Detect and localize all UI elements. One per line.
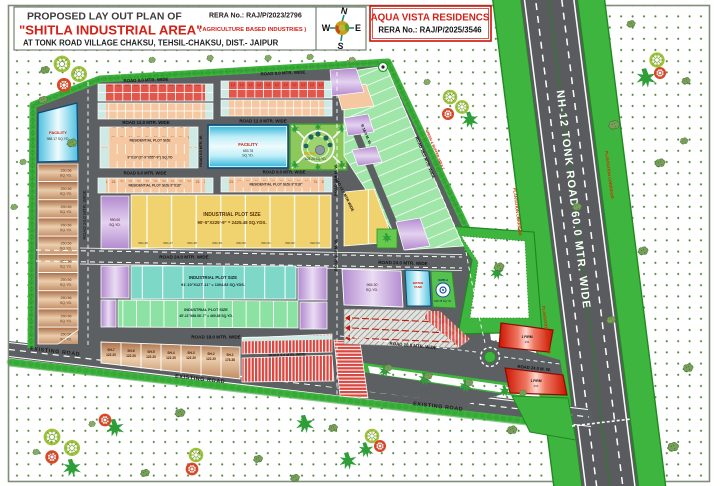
svg-text:SH-5: SH-5 xyxy=(147,350,154,354)
svg-text:SQ.YD.: SQ.YD. xyxy=(366,288,378,292)
svg-text:988.17 SQ.YD.: 988.17 SQ.YD. xyxy=(47,137,70,141)
svg-text:TANK: TANK xyxy=(414,285,423,289)
svg-text:ROAD 12.0 MTR. WIDE: ROAD 12.0 MTR. WIDE xyxy=(239,119,286,124)
svg-text:122.20: 122.20 xyxy=(106,353,116,357)
svg-text:1 FIRM: 1 FIRM xyxy=(530,379,541,383)
svg-text:252: 252 xyxy=(525,340,530,344)
svg-text:SHITLA: SHITLA xyxy=(438,278,448,282)
svg-text:178.38: 178.38 xyxy=(225,358,235,362)
svg-text:ROAD 9.0 MTR. WIDE: ROAD 9.0 MTR. WIDE xyxy=(263,170,306,175)
svg-text:IND-52: IND-52 xyxy=(285,241,295,245)
svg-text:INDUSTRIAL PLOT SIZE: INDUSTRIAL PLOT SIZE xyxy=(203,212,261,218)
svg-text:W: W xyxy=(322,23,331,33)
svg-text:IND-53: IND-53 xyxy=(310,241,320,245)
svg-text:IND-48: IND-48 xyxy=(187,241,197,245)
svg-text:PROPOSED LAY OUT PLAN OF: PROPOSED LAY OUT PLAN OF xyxy=(27,12,182,23)
svg-text:IND-46: IND-46 xyxy=(138,241,148,245)
svg-text:45'-11"X88.08'-7" = 460.38 SQ.: 45'-11"X88.08'-7" = 460.38 SQ.YD. xyxy=(179,314,233,318)
svg-text:IND-51: IND-51 xyxy=(261,241,271,245)
svg-text:SH-2: SH-2 xyxy=(207,352,214,356)
svg-text:FACILITY: FACILITY xyxy=(49,130,67,135)
svg-text:122.20: 122.20 xyxy=(166,356,176,360)
svg-text:SH-3: SH-3 xyxy=(187,351,194,355)
svg-text:ROAD 12.0 MTR. WIDE: ROAD 12.0 MTR. WIDE xyxy=(122,120,169,125)
svg-text:ROAD 9.0 MTR. W.: ROAD 9.0 MTR. W. xyxy=(199,135,203,167)
svg-text:E: E xyxy=(355,23,361,33)
svg-text:828.78 SQ.YD.: 828.78 SQ.YD. xyxy=(434,299,452,303)
svg-text:INDUSTRIAL PLOT SIZE: INDUSTRIAL PLOT SIZE xyxy=(184,308,228,312)
svg-text:FACILITY: FACILITY xyxy=(238,142,258,147)
svg-text:ROAD 24.0 MTR. WIDE: ROAD 24.0 MTR. WIDE xyxy=(159,255,209,260)
svg-text:RESIDENTIAL PLOT SIZE: RESIDENTIAL PLOT SIZE xyxy=(129,139,171,143)
svg-text:9"X19"(3"-9"X55"-9") SQ.YD: 9"X19"(3"-9"X55"-9") SQ.YD xyxy=(127,156,173,160)
svg-text:828.28 SQ.YD.: 828.28 SQ.YD. xyxy=(305,157,327,161)
svg-text:ROAD 18.5 M. W.: ROAD 18.5 M. W. xyxy=(333,239,338,271)
svg-text:122.20: 122.20 xyxy=(186,356,196,360)
svg-text:RERA No.: RAJ/P/2025/3546: RERA No.: RAJ/P/2025/3546 xyxy=(378,26,482,35)
svg-text:AT TONK ROAD VILLAGE CHAKSU, T: AT TONK ROAD VILLAGE CHAKSU, TEHSIL-CHAK… xyxy=(23,39,279,48)
svg-text:ROAD 24.0 MTR. WIDE: ROAD 24.0 MTR. WIDE xyxy=(82,190,87,239)
svg-text:122.20: 122.20 xyxy=(146,355,156,359)
svg-text:90'-5"X225'-9" = 2425.48 SQ.YD: 90'-5"X225'-9" = 2425.48 SQ.YDS. xyxy=(197,220,266,225)
svg-text:SH-7: SH-7 xyxy=(107,348,114,352)
svg-text:1 FIRM: 1 FIRM xyxy=(521,335,532,339)
svg-text:PARK: PARK xyxy=(304,151,316,156)
svg-text:653.78: 653.78 xyxy=(243,149,253,153)
svg-text:965.30: 965.30 xyxy=(367,283,378,287)
svg-text:RESIDENTIAL PLOT SIZE 9"X18": RESIDENTIAL PLOT SIZE 9"X18" xyxy=(249,183,302,187)
svg-text:253: 253 xyxy=(534,384,539,388)
svg-text:SH-4: SH-4 xyxy=(167,351,174,355)
svg-text:SQ.YD.: SQ.YD. xyxy=(109,223,121,227)
svg-text:( AGRICULTURE BASED INDUSTRIES: ( AGRICULTURE BASED INDUSTRIES ) xyxy=(199,27,306,33)
svg-text:122.20: 122.20 xyxy=(126,354,136,358)
svg-text:SH-1: SH-1 xyxy=(226,353,233,357)
svg-text:SQ.YD.: SQ.YD. xyxy=(242,154,254,158)
svg-text:91'-10"X127'-11" = 1304.83 SQ.: 91'-10"X127'-11" = 1304.83 SQ.YDS. xyxy=(181,283,245,287)
svg-text:"SHITLA INDUSTRIAL AREA": "SHITLA INDUSTRIAL AREA" xyxy=(19,23,202,38)
svg-text:RESIDENTIAL PLOT SIZE 9"X18": RESIDENTIAL PLOT SIZE 9"X18" xyxy=(128,184,181,188)
svg-text:IND-50: IND-50 xyxy=(236,241,246,245)
svg-text:RERA No.: RAJ/P/2023/2796: RERA No.: RAJ/P/2023/2796 xyxy=(209,13,302,20)
svg-text:IND-47: IND-47 xyxy=(163,241,173,245)
svg-text:122.20: 122.20 xyxy=(206,357,216,361)
svg-text:IND-49: IND-49 xyxy=(212,241,222,245)
svg-text:INDUSTRIAL PLOT SIZE: INDUSTRIAL PLOT SIZE xyxy=(189,275,237,280)
svg-text:ROAD 18.0 MTR. WIDE: ROAD 18.0 MTR. WIDE xyxy=(191,335,241,340)
svg-text:AQUA VISTA RESIDENCS: AQUA VISTA RESIDENCS xyxy=(371,13,490,24)
svg-text:990.00: 990.00 xyxy=(110,218,120,222)
svg-text:SH-6: SH-6 xyxy=(127,349,134,353)
svg-text:ROAD 9.0 MTR. WIDE: ROAD 9.0 MTR. WIDE xyxy=(124,171,167,176)
